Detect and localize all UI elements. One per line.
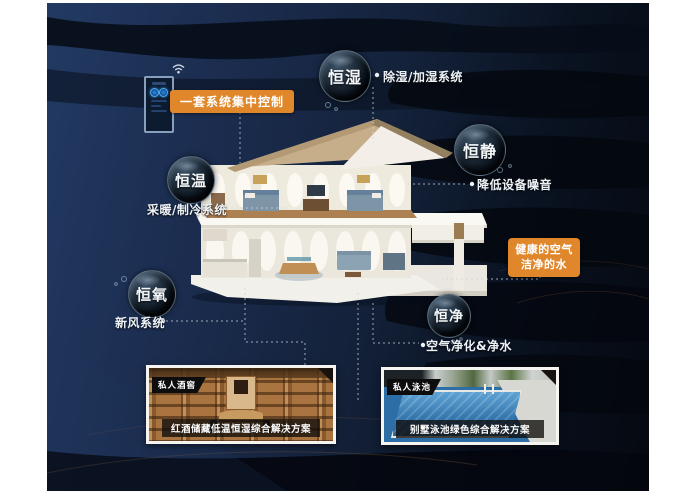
house-illustration bbox=[187, 113, 487, 313]
card-corner-fold bbox=[318, 368, 333, 383]
card-corner-fold bbox=[541, 370, 556, 385]
scene-canvas: 一套系统集中控制 恒湿 恒静 恒温 恒氧 恒净 除湿/加湿系统 降低设备噪音 采… bbox=[47, 3, 649, 491]
device-row bbox=[151, 105, 161, 107]
label-heating-cooling-system: 采暖/制冷系统 bbox=[147, 201, 227, 218]
bubble-constant-oxygen: 恒氧 bbox=[128, 270, 176, 318]
wifi-icon bbox=[171, 62, 186, 75]
clean-water-line: 洁净的水 bbox=[512, 257, 576, 272]
infographic-frame: 一套系统集中控制 恒湿 恒静 恒温 恒氧 恒净 除湿/加湿系统 降低设备噪音 采… bbox=[0, 0, 700, 497]
bubble-constant-quiet-text: 恒静 bbox=[463, 138, 497, 162]
device-screen-header bbox=[152, 82, 166, 85]
device-row bbox=[151, 100, 167, 102]
pool-card: 私人泳池 别墅泳池绿色综合解决方案 bbox=[381, 367, 559, 445]
wine-cellar-photo: 私人酒窖 红酒储藏低温恒湿综合解决方案 bbox=[149, 368, 333, 441]
device-row bbox=[151, 110, 167, 112]
healthy-air-line: 健康的空气 bbox=[512, 242, 576, 257]
pool-caption: 别墅泳池绿色综合解决方案 bbox=[396, 420, 544, 438]
bubble-constant-oxygen-text: 恒氧 bbox=[136, 284, 168, 305]
device-knobs bbox=[149, 88, 169, 97]
bubble-constant-purity-text: 恒净 bbox=[434, 306, 464, 326]
wine-cellar-badge: 私人酒窖 bbox=[152, 377, 206, 393]
label-air-water-purification: 空气净化&净水 bbox=[426, 337, 512, 354]
bubble-constant-temperature-text: 恒温 bbox=[175, 170, 207, 191]
bubble-constant-humidity-text: 恒湿 bbox=[328, 64, 362, 88]
bubble-constant-quiet: 恒静 bbox=[454, 124, 506, 176]
pool-ladder bbox=[484, 384, 494, 394]
central-control-label: 一套系统集中控制 bbox=[170, 90, 294, 113]
wine-cellar-caption: 红酒储藏低温恒湿综合解决方案 bbox=[162, 419, 320, 437]
bubble-constant-purity: 恒净 bbox=[427, 294, 471, 338]
bubble-constant-temperature: 恒温 bbox=[167, 156, 215, 204]
wine-cellar-card: 私人酒窖 红酒储藏低温恒湿综合解决方案 bbox=[146, 365, 336, 444]
wine-cellar-art bbox=[234, 380, 249, 394]
label-noise-reduction: 降低设备噪音 bbox=[477, 176, 552, 193]
healthy-air-water-box: 健康的空气 洁净的水 bbox=[508, 238, 580, 277]
label-dehumidify-system: 除湿/加湿系统 bbox=[383, 68, 463, 85]
pool-badge: 私人泳池 bbox=[387, 379, 441, 395]
device-knob-left bbox=[150, 88, 159, 97]
pool-photo: 私人泳池 别墅泳池绿色综合解决方案 bbox=[384, 370, 556, 442]
device-knob-right bbox=[159, 88, 168, 97]
label-fresh-air-system: 新风系统 bbox=[115, 314, 165, 331]
bubble-constant-humidity: 恒湿 bbox=[319, 50, 371, 102]
